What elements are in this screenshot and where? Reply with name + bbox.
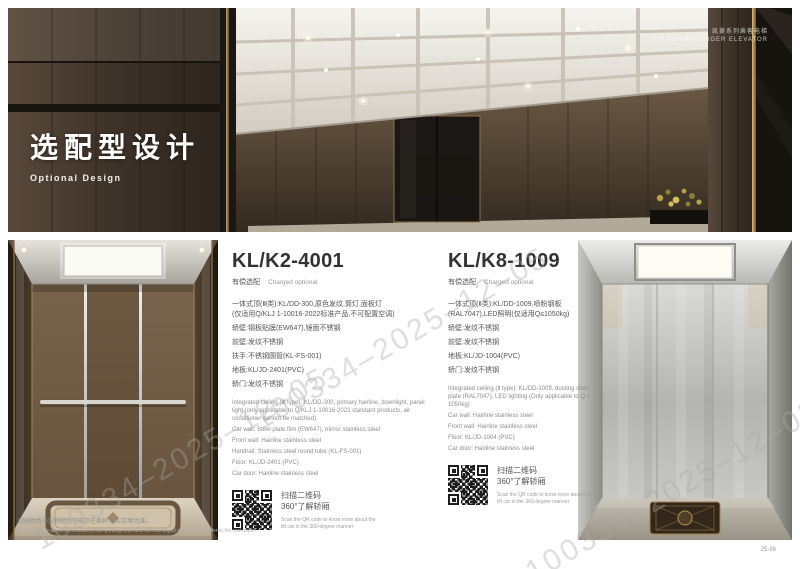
color-disclaimer: 印刷颜色与实物颜色可能存在差异,请以实物为准。 There may be dif… [18, 518, 257, 535]
spec-line-en: Handrail: Stainless steel round tube (KL… [232, 448, 432, 456]
qr-finder-icon [448, 494, 459, 505]
spec-line-en: Car wall: Steel plate film (EW647), mirr… [232, 426, 432, 434]
qr-caption-zh-1: 扫描二维码 [281, 490, 377, 501]
qr-caption-zh-2: 360°了解轿厢 [497, 476, 593, 487]
spec-line-en: Floor: KL/JD-2401 (PVC) [232, 459, 432, 467]
page-number: 25-26 [761, 547, 776, 553]
spec-line: 轿门:发纹不锈钢 [448, 366, 600, 376]
hero-title: 选配型设计 Optional Design [30, 126, 200, 183]
specs-zh: 一体式顶(Ⅱ类):KL/DD-1009,喷粉钢板 (RAL7047),LED照明… [448, 300, 600, 376]
spec-line: 轿门:发纹不锈钢 [232, 380, 432, 390]
brochure-page: 选配型设计 Optional Design 凯菱系列乘客电梯 KLAS-PASS… [0, 0, 800, 569]
spec-line: (RAL7047),LED照明(仅适用Q≤1050kg) [448, 310, 600, 320]
spec-line: 一体式顶(Ⅱ类):KL/DD-1009,喷粉钢板 [448, 300, 600, 310]
spec-line-en: Car door: Hairline stainless steel [232, 470, 432, 478]
charged-optional-tag: 有偿选配 Charged optional [232, 277, 432, 287]
spec-line: 前壁:发纹不锈钢 [448, 338, 600, 348]
hero-title-en: Optional Design [30, 173, 200, 183]
qr-finder-icon [261, 490, 272, 501]
color-disclaimer-en: There may be differences between the pri… [18, 527, 257, 535]
spec-line-en: Front wall: Hairline stainless steel [232, 437, 432, 445]
spec-line: 地板:KL/JD-2401(PVC) [232, 366, 432, 376]
qr-caption-zh-2: 360°了解轿厢 [281, 501, 377, 512]
specs-en: Integrated ceiling (Ⅱ type): KL/DD-1009,… [448, 385, 600, 453]
spec-line: 一体式顶(Ⅲ类):KL/DD-300,原色发纹,筒灯,面板灯 [232, 300, 432, 310]
qr-section: 扫描二维码 360°了解轿厢 Scan the QR code to know … [448, 465, 600, 506]
wood-cab-illustration [8, 240, 218, 540]
spec-line: 轿壁:发纹不锈钢 [448, 324, 600, 334]
spec-line: 前壁:发纹不锈钢 [232, 338, 432, 348]
charged-optional-en: Charged optional [268, 279, 318, 286]
spec-line-en: Integrated ceiling (Ⅱ type): KL/DD-1009,… [448, 385, 600, 409]
product-photo-kl-k2-4001 [8, 240, 218, 540]
qr-code [448, 465, 488, 505]
qr-finder-icon [232, 490, 243, 501]
charged-optional-zh: 有偿选配 [232, 279, 260, 286]
qr-finder-icon [448, 465, 459, 476]
product-model: KL/K8-1009 [448, 250, 600, 273]
product-section-kl-k8-1009: KL/K8-1009 有偿选配 Charged optional 一体式顶(Ⅱ类… [448, 250, 600, 506]
spec-line-en: Front wall: Hairline stainless steel [448, 423, 600, 431]
spec-line: 地板:KL/JD-1004(PVC) [448, 352, 600, 362]
spec-line-en: Floor: KL/JD-1004 (PVC) [448, 434, 600, 442]
hero-title-zh: 选配型设计 [30, 126, 200, 166]
charged-optional-en: Charged optional [484, 279, 534, 286]
specs-zh: 一体式顶(Ⅲ类):KL/DD-300,原色发纹,筒灯,面板灯 (仅适用Q/KLJ… [232, 300, 432, 390]
series-label-en: KLAS-PASSENGER ELEVATOR [658, 36, 768, 44]
spec-line-en: Car door: Hairline stainless steel [448, 445, 600, 453]
qr-finder-icon [477, 465, 488, 476]
charged-optional-tag: 有偿选配 Charged optional [448, 277, 600, 287]
qr-caption: 扫描二维码 360°了解轿厢 Scan the QR code to know … [281, 490, 377, 531]
qr-caption-zh-1: 扫描二维码 [497, 465, 593, 476]
qr-caption-en: Scan the QR code to know more about the … [281, 517, 377, 531]
qr-caption-en: Scan the QR code to know more about the … [497, 492, 593, 506]
product-photo-kl-k8-1009 [578, 240, 792, 540]
qr-caption: 扫描二维码 360°了解轿厢 Scan the QR code to know … [497, 465, 593, 506]
hero-photo-lobby: 选配型设计 Optional Design 凯菱系列乘客电梯 KLAS-PASS… [8, 8, 792, 232]
charged-optional-zh: 有偿选配 [448, 279, 476, 286]
product-section-kl-k2-4001: KL/K2-4001 有偿选配 Charged optional 一体式顶(Ⅲ类… [232, 250, 432, 531]
spec-line-en: Integrated ceiling (Ⅲ type): KL/DD-300, … [232, 399, 432, 423]
series-label: 凯菱系列乘客电梯 KLAS-PASSENGER ELEVATOR [658, 28, 768, 44]
color-disclaimer-zh: 印刷颜色与实物颜色可能存在差异,请以实物为准。 [18, 518, 257, 527]
spec-line: 轿壁:钢板贴膜(EW647),镜面不锈钢 [232, 324, 432, 334]
series-label-zh: 凯菱系列乘客电梯 [658, 28, 768, 36]
product-model: KL/K2-4001 [232, 250, 432, 273]
spec-line-en: Car wall: Hairline stainless steel [448, 412, 600, 420]
spec-line: 扶手:不锈钢圆管(KL-FS-001) [232, 352, 432, 362]
steel-cab-illustration [578, 240, 792, 540]
specs-en: Integrated ceiling (Ⅲ type): KL/DD-300, … [232, 399, 432, 478]
qr-section: 扫描二维码 360°了解轿厢 Scan the QR code to know … [232, 490, 432, 531]
spec-line: (仅适用Q/KLJ 1-10016-2022标准产品,不可配置空调) [232, 310, 432, 320]
